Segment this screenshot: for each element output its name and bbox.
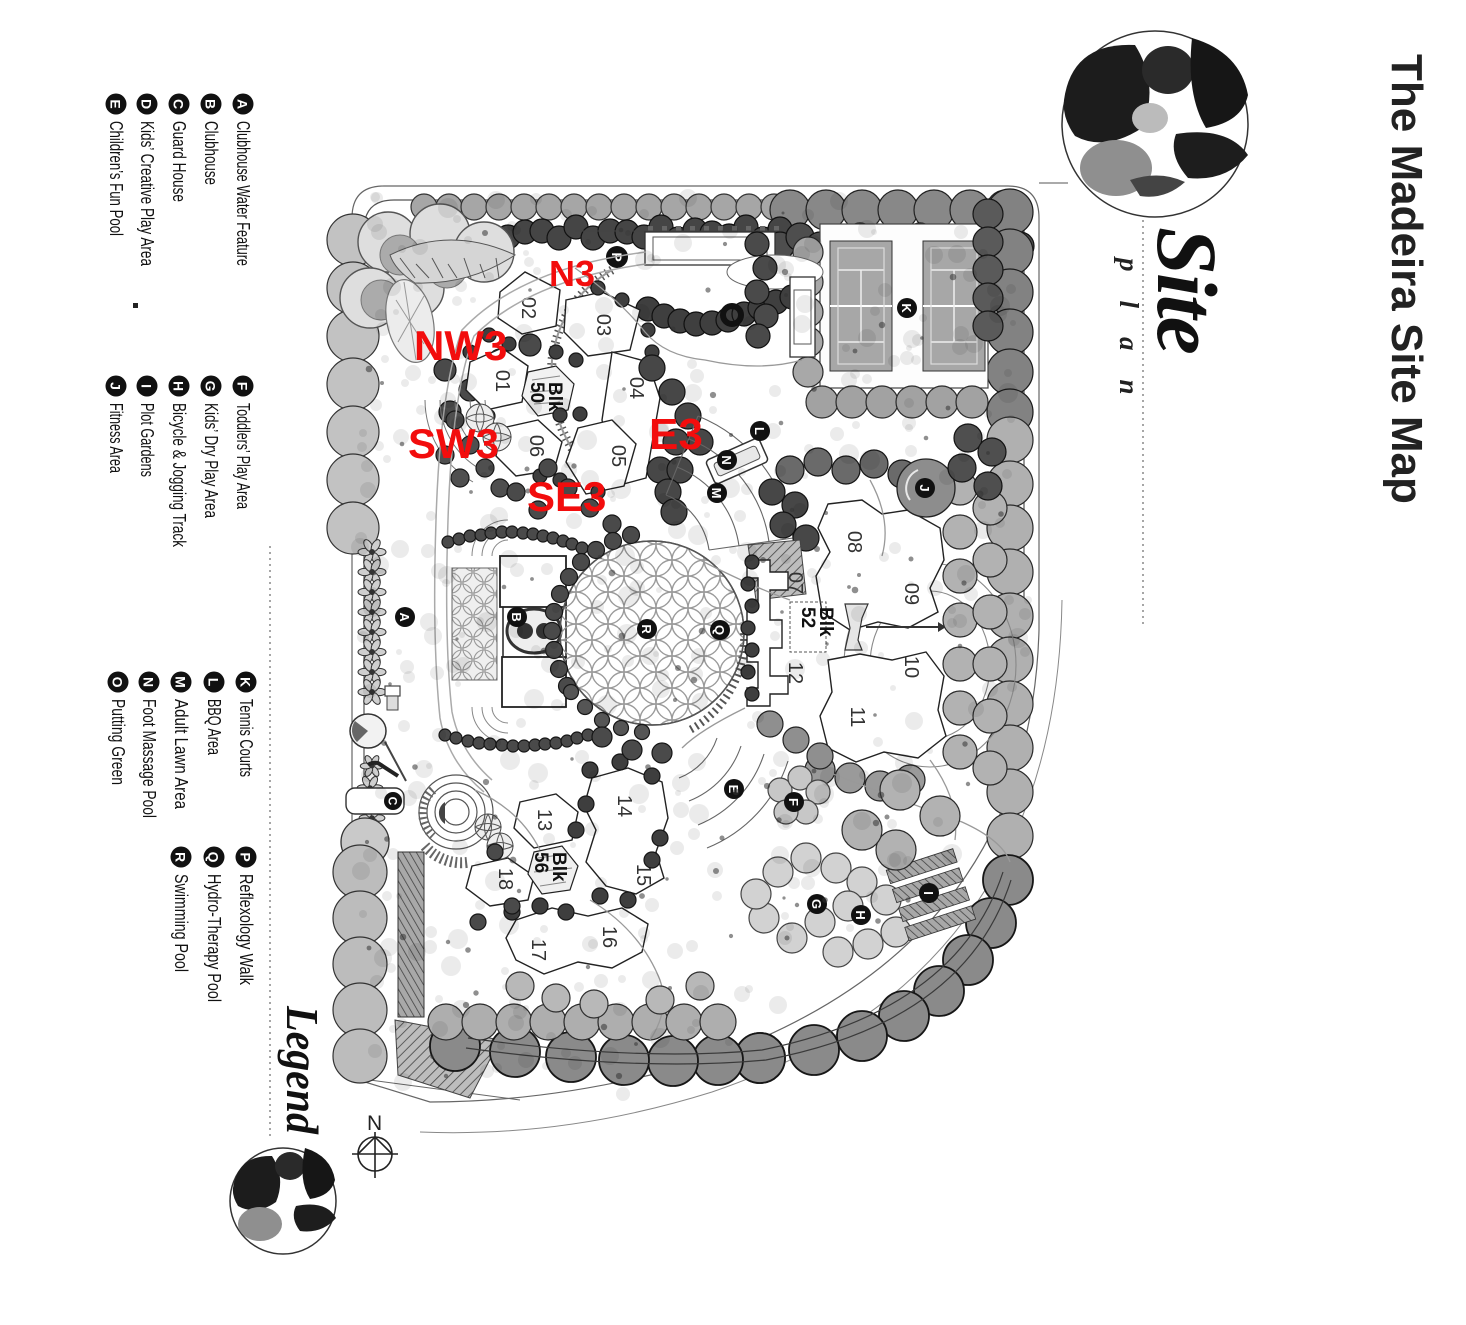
svg-text:Legend: Legend <box>277 1005 327 1135</box>
svg-text:K: K <box>238 677 254 687</box>
svg-text:M: M <box>173 676 189 688</box>
svg-text:P: P <box>238 852 254 861</box>
svg-text:Tennis Courts: Tennis Courts <box>236 699 256 777</box>
svg-text:16: 16 <box>598 926 620 948</box>
svg-text:J: J <box>108 382 124 390</box>
svg-text:I: I <box>921 891 936 895</box>
svg-text:SE3: SE3 <box>527 473 606 520</box>
svg-text:A: A <box>235 99 251 109</box>
svg-text:13: 13 <box>533 809 555 831</box>
svg-text:E: E <box>108 99 124 108</box>
svg-text:C: C <box>386 797 400 806</box>
svg-text:03: 03 <box>592 314 614 336</box>
svg-text:plan: plan <box>1114 256 1144 424</box>
svg-text:N: N <box>367 1112 382 1135</box>
svg-text:Site: Site <box>1139 227 1235 354</box>
svg-text:H: H <box>853 910 868 919</box>
svg-text:Clubhouse: Clubhouse <box>201 121 221 185</box>
svg-text:BBQ Area: BBQ Area <box>204 699 224 756</box>
svg-text:H: H <box>171 381 187 391</box>
svg-text:R: R <box>639 624 654 634</box>
svg-text:G: G <box>203 381 219 392</box>
svg-text:N: N <box>719 455 734 464</box>
svg-text:52: 52 <box>797 607 818 628</box>
svg-text:11: 11 <box>846 707 868 728</box>
svg-text:Kids’ Dry Play Area: Kids’ Dry Play Area <box>201 403 221 519</box>
svg-text:N: N <box>141 677 157 687</box>
svg-text:NW3: NW3 <box>414 322 507 369</box>
svg-text:L: L <box>752 427 767 435</box>
svg-text:Clubhouse Water Feature: Clubhouse Water Feature <box>233 121 253 266</box>
svg-text:I: I <box>139 384 155 388</box>
svg-text:05: 05 <box>607 445 629 467</box>
svg-text:The Madeira Site Map: The Madeira Site Map <box>1382 54 1431 504</box>
svg-text:Guard House: Guard House <box>169 121 189 202</box>
svg-text:K: K <box>899 303 914 313</box>
svg-text:SW3: SW3 <box>408 420 499 467</box>
svg-text:Plot Gardens: Plot Gardens <box>137 403 157 477</box>
svg-text:Swimming Pool: Swimming Pool <box>171 874 191 972</box>
svg-text:08: 08 <box>843 531 865 553</box>
svg-text:J: J <box>917 484 932 491</box>
svg-text:Reflexology Walk: Reflexology Walk <box>236 874 256 986</box>
svg-text:O: O <box>110 677 126 688</box>
svg-text:B: B <box>203 99 219 109</box>
svg-text:Toddlers’ Play Area: Toddlers’ Play Area <box>233 403 253 510</box>
svg-text:02: 02 <box>517 297 539 319</box>
svg-text:Children’s Fun Pool: Children’s Fun Pool <box>106 121 126 236</box>
svg-text:R: R <box>173 852 189 862</box>
svg-text:N3: N3 <box>549 253 595 294</box>
svg-text:Kids’ Creative Play Area: Kids’ Creative Play Area <box>137 121 157 267</box>
svg-text:A: A <box>397 612 412 622</box>
svg-text:F: F <box>235 382 251 391</box>
svg-text:G: G <box>809 899 824 909</box>
svg-text:10: 10 <box>900 656 922 678</box>
svg-text:Putting Green: Putting Green <box>108 699 128 785</box>
svg-text:56: 56 <box>530 852 551 873</box>
svg-text:Bicycle & Jogging Track: Bicycle & Jogging Track <box>169 403 189 548</box>
svg-text:Foot Massage Pool: Foot Massage Pool <box>139 699 159 818</box>
svg-text:C: C <box>171 99 187 109</box>
svg-text:L: L <box>206 678 222 687</box>
svg-text:E3: E3 <box>649 410 703 459</box>
svg-text:04: 04 <box>625 377 647 399</box>
svg-text:07: 07 <box>784 572 806 594</box>
svg-text:B: B <box>509 612 524 621</box>
svg-text:Q: Q <box>206 852 222 863</box>
svg-text:Hydro-Therapy Pool: Hydro-Therapy Pool <box>204 874 224 1002</box>
svg-text:Fitness Area: Fitness Area <box>106 403 126 474</box>
svg-text:D: D <box>139 99 155 109</box>
svg-text:Q: Q <box>712 625 727 635</box>
svg-text:F: F <box>786 798 801 806</box>
svg-text:Adult Lawn Area: Adult Lawn Area <box>171 699 191 810</box>
